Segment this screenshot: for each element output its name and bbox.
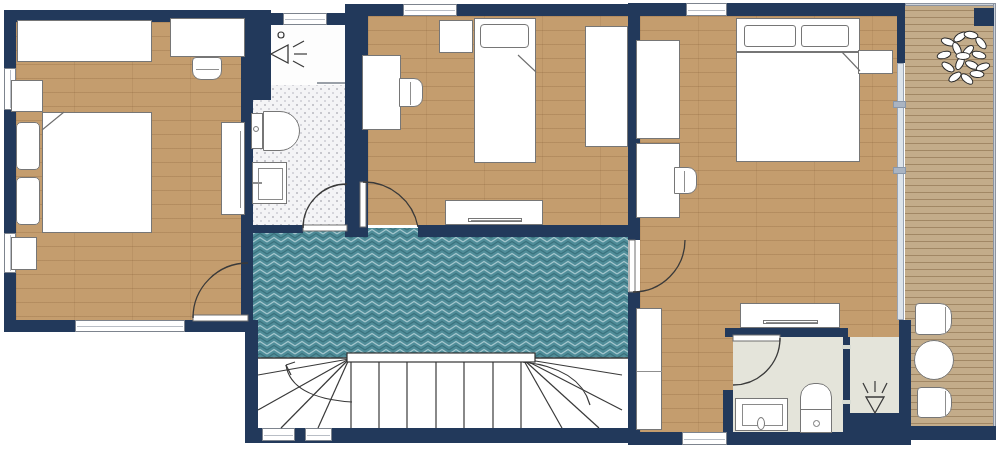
bedroom3-pillow-a <box>744 25 796 47</box>
bedroom2-desk-chair-bar <box>410 82 411 105</box>
balcony-chair-a <box>915 303 952 335</box>
bedroom3-tv-cabinet <box>740 303 840 328</box>
bedroom2-cabinet <box>439 20 473 53</box>
bedroom1-desk <box>170 18 245 57</box>
balcony-chair-b-bar <box>945 391 946 416</box>
bedroom3-tv-bar <box>766 322 817 323</box>
bedroom2-tv <box>468 218 522 222</box>
bedroom2-desk <box>362 55 401 130</box>
bedroom1-nightstand-a <box>11 80 43 112</box>
balcony-table <box>914 340 954 380</box>
balcony-chair-a-bar <box>945 307 946 333</box>
bedroom3-pillow-b <box>801 25 849 47</box>
furniture-layer <box>0 0 1000 450</box>
bedroom1-tall-cabinet-bar <box>240 131 241 208</box>
bedroom2-pillow <box>480 24 529 48</box>
bedroom1-tall-cabinet <box>221 122 245 215</box>
bedroom3-wardrobe-a <box>636 40 680 139</box>
bedroom3-desk-chair-bar <box>684 171 685 192</box>
bedroom3-wardrobe-b <box>636 308 662 430</box>
bedroom3-nightstand <box>858 50 893 74</box>
bedroom2-desk-chair <box>399 78 423 107</box>
ensuite-toilet-bowl <box>800 383 832 412</box>
floor-plan <box>0 0 1000 450</box>
bedroom2-tv-bar <box>471 220 521 221</box>
balcony-chair-b <box>917 387 952 418</box>
bathroom1-sink-inner <box>258 168 283 200</box>
bedroom3-double-bed <box>736 52 860 162</box>
ensuite-toilet-button <box>813 420 820 427</box>
bedroom2-wardrobe <box>585 26 628 147</box>
bedroom3-desk-chair <box>674 167 697 194</box>
bedroom1-double-bed <box>42 112 152 233</box>
bathroom1-sink-bar <box>253 182 262 184</box>
bedroom1-pillow-b <box>16 177 40 225</box>
bedroom3-wardrobe-b-bar <box>637 371 662 372</box>
bedroom3-tv <box>763 320 818 324</box>
bathroom1-toilet-bowl <box>263 111 300 151</box>
bedroom1-desk-chair <box>192 57 222 80</box>
bedroom1-pillow-a <box>16 122 40 170</box>
bathroom1-toilet-button <box>253 126 259 132</box>
bedroom1-nightstand-b <box>11 237 37 270</box>
bedroom1-wardrobe <box>17 20 152 62</box>
bathroom1-sink <box>252 162 287 204</box>
bedroom1-desk-chair-bar <box>196 69 219 70</box>
ensuite-sink-handle <box>757 417 765 430</box>
